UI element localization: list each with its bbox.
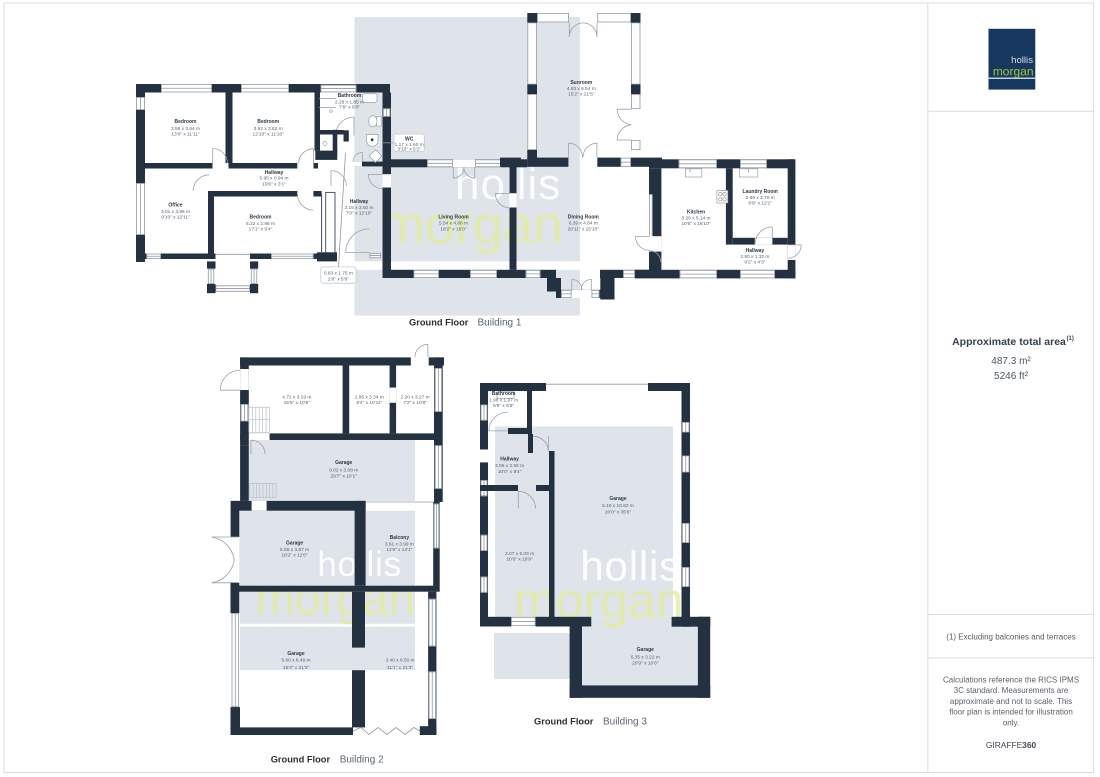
svg-text:Building 2: Building 2 <box>340 754 384 765</box>
svg-text:2.28 x 1.85 m: 2.28 x 1.85 m <box>335 99 364 105</box>
svg-text:Hallway: Hallway <box>500 456 519 462</box>
svg-text:6.35 x 3.22 m: 6.35 x 3.22 m <box>631 655 660 661</box>
svg-text:Ground Floor: Ground Floor <box>271 754 331 764</box>
svg-text:3.06 x 2.55 m: 3.06 x 2.55 m <box>495 463 524 469</box>
svg-text:morgan: morgan <box>380 195 563 255</box>
svg-text:floor plan is intended for ill: floor plan is intended for illustration <box>949 708 1073 717</box>
svg-text:18'2" x 12'0": 18'2" x 12'0" <box>281 552 308 558</box>
svg-text:20'0" x 35'6": 20'0" x 35'6" <box>605 510 632 516</box>
svg-text:3'10" x 5'2": 3'10" x 5'2" <box>397 147 421 153</box>
svg-text:6'8" x 6'5": 6'8" x 6'5" <box>493 403 514 409</box>
svg-text:6'4" x 10'11": 6'4" x 10'11" <box>356 400 382 406</box>
svg-text:Ground Floor: Ground Floor <box>534 717 594 727</box>
svg-text:2.15 x 3.92 m: 2.15 x 3.92 m <box>344 205 373 211</box>
svg-text:20'9" x 10'6": 20'9" x 10'6" <box>632 661 659 667</box>
svg-text:8'9" x 12'1": 8'9" x 12'1" <box>748 200 772 206</box>
svg-text:20'11" x 15'10": 20'11" x 15'10" <box>568 226 600 232</box>
svg-text:17'1" x 9'4": 17'1" x 9'4" <box>249 226 273 232</box>
svg-text:approximate and not to scale.: approximate and not to scale. This <box>950 697 1072 706</box>
svg-text:5.55 x 3.67 m: 5.55 x 3.67 m <box>280 547 309 553</box>
svg-text:12'10" x 11'10": 12'10" x 11'10" <box>253 131 285 137</box>
svg-text:1.98 x 1.97 m: 1.98 x 1.97 m <box>489 398 518 404</box>
svg-text:Dining Room: Dining Room <box>568 215 600 221</box>
svg-text:4.71 x 3.19 m: 4.71 x 3.19 m <box>282 395 311 401</box>
svg-text:Bathroom: Bathroom <box>338 93 362 99</box>
svg-text:Bedroom: Bedroom <box>250 215 273 221</box>
svg-text:9'2" x 4'3": 9'2" x 4'3" <box>744 260 765 266</box>
svg-text:(1) Excluding balconies and te: (1) Excluding balconies and terraces <box>946 633 1075 642</box>
svg-text:Building 3: Building 3 <box>603 717 647 728</box>
svg-text:Garage: Garage <box>637 647 654 653</box>
svg-text:10'0" x 8'4": 10'0" x 8'4" <box>498 469 522 475</box>
svg-text:morgan: morgan <box>993 64 1034 78</box>
svg-text:GIRAFFE360: GIRAFFE360 <box>986 740 1037 750</box>
svg-text:19'6" x 3'1": 19'6" x 3'1" <box>262 181 286 187</box>
svg-text:5.95 x 0.94 m: 5.95 x 0.94 m <box>259 176 288 182</box>
svg-text:3C standard. Measurements are: 3C standard. Measurements are <box>954 686 1069 695</box>
svg-text:7'6" x 6'0": 7'6" x 6'0" <box>339 105 360 111</box>
svg-text:Garage: Garage <box>287 651 304 657</box>
svg-text:3.40 x 6.50 m: 3.40 x 6.50 m <box>385 657 414 663</box>
svg-text:11'1" x 21'3": 11'1" x 21'3" <box>387 665 413 671</box>
svg-text:Hallway: Hallway <box>746 248 765 254</box>
svg-text:3.01 x 3.96 m: 3.01 x 3.96 m <box>161 209 190 215</box>
svg-text:3.58 x 3.64 m: 3.58 x 3.64 m <box>171 126 200 132</box>
svg-text:3.61 x 3.99 m: 3.61 x 3.99 m <box>385 541 414 547</box>
svg-text:Garage: Garage <box>335 460 352 466</box>
svg-text:10'5" x 16'10": 10'5" x 16'10" <box>682 221 711 227</box>
svg-text:Living Room: Living Room <box>438 215 469 221</box>
svg-text:morgan: morgan <box>256 571 415 624</box>
svg-text:4.63 x 6.54 m: 4.63 x 6.54 m <box>567 86 596 92</box>
svg-text:11'9" x 13'1": 11'9" x 13'1" <box>386 547 412 553</box>
svg-text:Building 1: Building 1 <box>478 317 522 328</box>
svg-text:WC: WC <box>405 137 414 143</box>
svg-text:5.22 x 2.86 m: 5.22 x 2.86 m <box>246 221 275 227</box>
svg-text:Office: Office <box>168 202 182 208</box>
svg-text:13'0" x 11'11": 13'0" x 11'11" <box>171 131 200 137</box>
svg-text:3.92 x 3.62 m: 3.92 x 3.62 m <box>254 126 283 132</box>
svg-text:18'4" x 21'3": 18'4" x 21'3" <box>283 665 310 671</box>
svg-text:7'0" x 12'10": 7'0" x 12'10" <box>346 211 373 217</box>
svg-text:Laundry Room: Laundry Room <box>743 189 779 195</box>
svg-text:2.80 x 1.32 m: 2.80 x 1.32 m <box>740 254 769 260</box>
svg-text:9.02 x 3.08 m: 9.02 x 3.08 m <box>329 468 358 474</box>
svg-text:Kitchen: Kitchen <box>687 209 705 215</box>
svg-text:5246 ft²: 5246 ft² <box>994 371 1029 382</box>
svg-text:Calculations reference the RIC: Calculations reference the RICS IPMS <box>943 676 1079 685</box>
svg-text:Bathroom: Bathroom <box>492 391 516 397</box>
svg-text:Hallway: Hallway <box>265 170 284 176</box>
svg-text:18'2" x 16'0": 18'2" x 16'0" <box>440 226 467 232</box>
svg-text:0.83 x 1.75 m: 0.83 x 1.75 m <box>324 271 353 277</box>
svg-text:(1): (1) <box>1067 336 1074 342</box>
svg-text:5.60 x 6.49 m: 5.60 x 6.49 m <box>281 658 310 664</box>
svg-text:Hallway: Hallway <box>350 199 369 205</box>
svg-text:1.95 x 3.34 m: 1.95 x 3.34 m <box>355 395 384 401</box>
svg-text:Garage: Garage <box>609 496 626 502</box>
svg-text:7'2" x 10'8": 7'2" x 10'8" <box>403 400 427 406</box>
svg-text:10'0" x 19'9": 10'0" x 19'9" <box>506 556 533 562</box>
svg-text:487.3 m²: 487.3 m² <box>991 356 1031 367</box>
svg-text:9'10" x 12'11": 9'10" x 12'11" <box>161 214 190 220</box>
svg-text:3.20 x 5.14 m: 3.20 x 5.14 m <box>681 216 710 222</box>
svg-text:6.10 x 10.82 m: 6.10 x 10.82 m <box>602 503 634 509</box>
svg-text:3.07 x 6.03 m: 3.07 x 6.03 m <box>505 551 534 557</box>
svg-text:2.69 x 3.70 m: 2.69 x 3.70 m <box>746 195 775 201</box>
svg-text:2.20 x 3.27 m: 2.20 x 3.27 m <box>401 395 430 401</box>
svg-text:5.54 x 4.88 m: 5.54 x 4.88 m <box>439 221 468 227</box>
svg-text:only.: only. <box>1003 718 1019 727</box>
svg-text:Ground Floor: Ground Floor <box>409 317 469 327</box>
svg-text:Sunroom: Sunroom <box>570 80 592 86</box>
svg-text:Balcony: Balcony <box>390 535 410 541</box>
svg-text:15'2" x 21'5": 15'2" x 21'5" <box>568 92 595 98</box>
svg-text:29'7" x 10'1": 29'7" x 10'1" <box>331 474 358 480</box>
svg-text:2'8" x 5'9": 2'8" x 5'9" <box>328 277 349 283</box>
svg-text:Bedroom: Bedroom <box>175 119 198 125</box>
svg-text:6.39 x 4.84 m: 6.39 x 4.84 m <box>569 221 598 227</box>
svg-text:Garage: Garage <box>286 541 303 547</box>
svg-text:Bedroom: Bedroom <box>257 119 280 125</box>
svg-text:Approximate total area: Approximate total area <box>952 336 1066 348</box>
svg-text:15'5" x 10'5": 15'5" x 10'5" <box>284 400 311 406</box>
